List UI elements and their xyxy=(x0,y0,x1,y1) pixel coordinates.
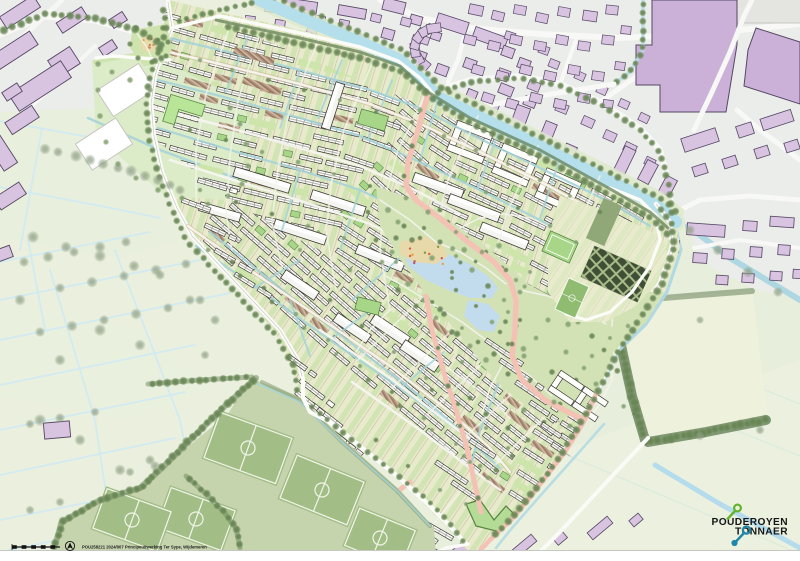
svg-text:POU258221 2024/007 Principeuit: POU258221 2024/007 Principeuitwerking Te… xyxy=(82,544,207,549)
